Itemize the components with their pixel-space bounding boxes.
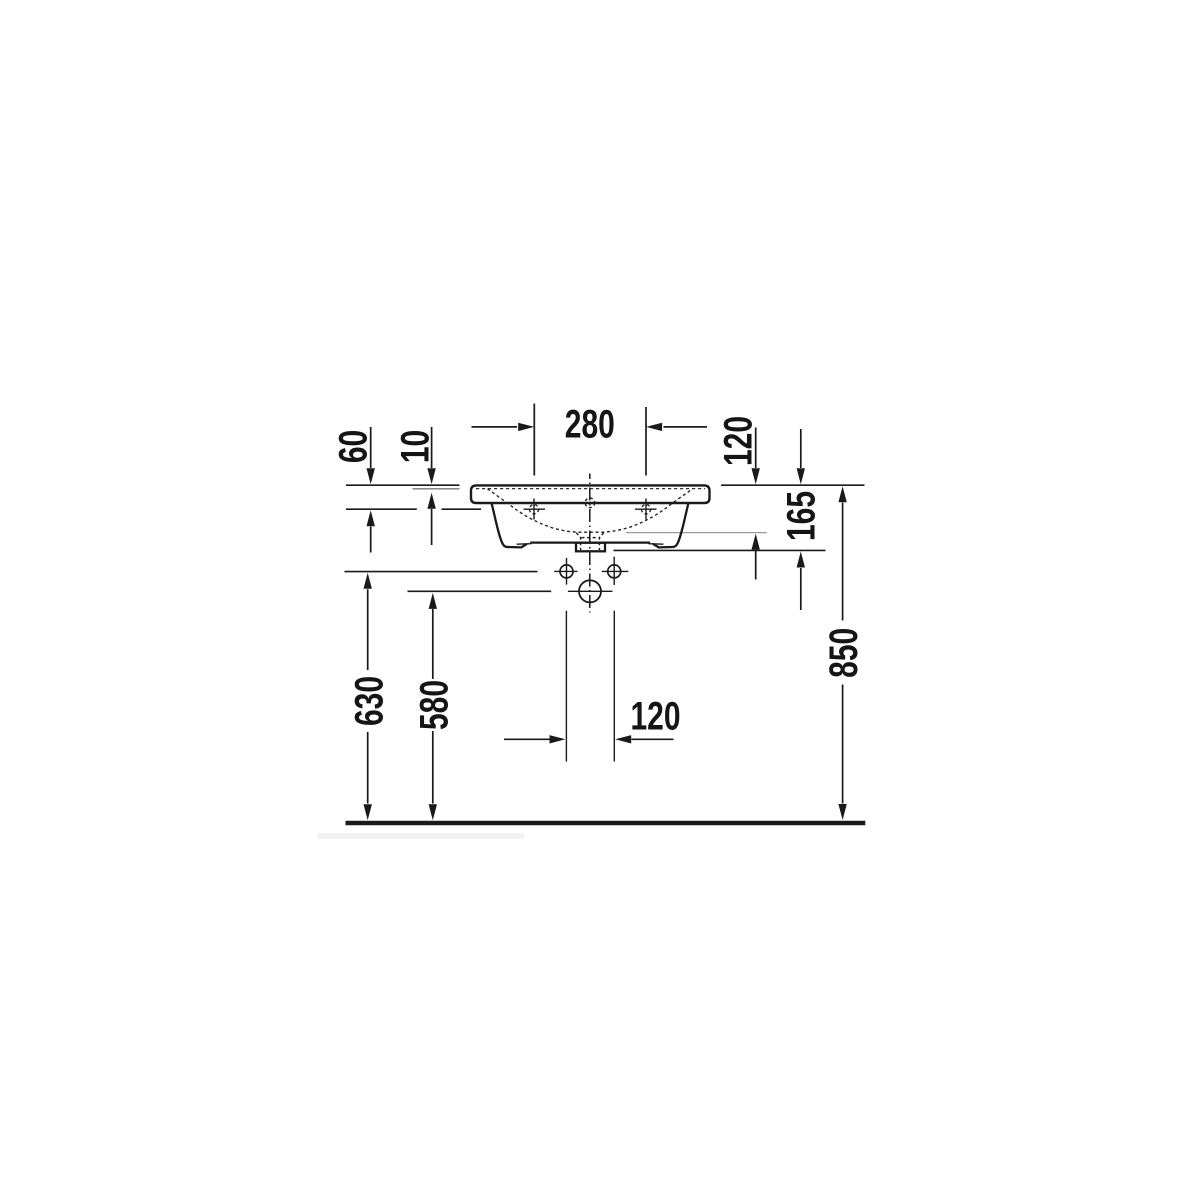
svg-text:120: 120 [717, 416, 761, 466]
svg-text:630: 630 [347, 676, 391, 726]
svg-text:280: 280 [565, 402, 615, 446]
svg-text:120: 120 [630, 694, 680, 738]
svg-text:60: 60 [332, 430, 376, 463]
svg-text:580: 580 [412, 680, 456, 730]
svg-text:850: 850 [822, 628, 866, 678]
svg-text:10: 10 [394, 430, 438, 463]
svg-text:165: 165 [779, 491, 823, 541]
